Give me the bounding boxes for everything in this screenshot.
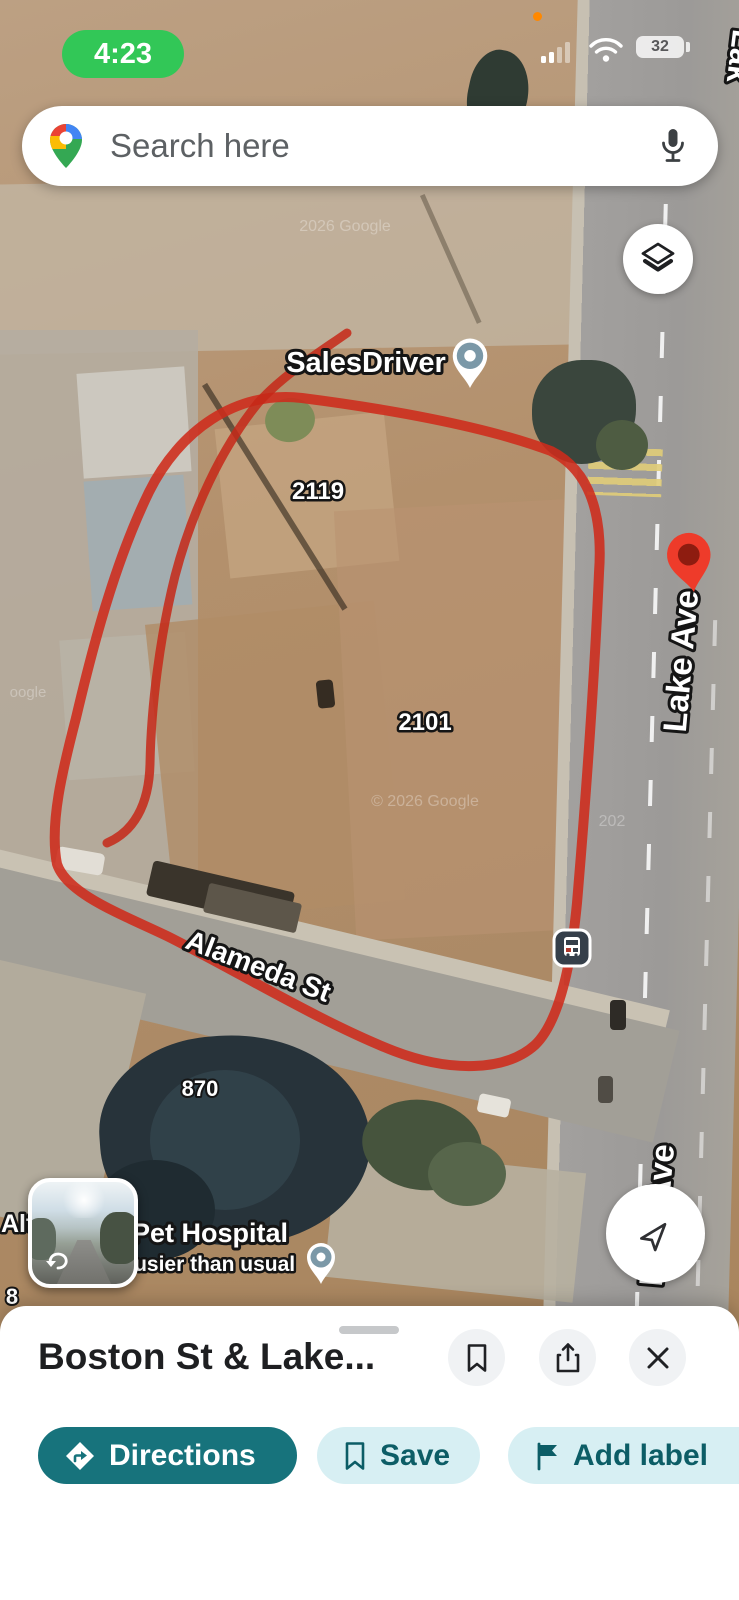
place-bottom-sheet: Boston St & Lake... <box>0 1306 739 1600</box>
directions-label: Directions <box>109 1439 256 1473</box>
label-salesdriver[interactable]: SalesDriver <box>286 347 446 379</box>
label-pet-hospital[interactable]: Pet Hospital <box>132 1218 288 1248</box>
save-label: Save <box>380 1439 450 1473</box>
label-alameda-st: Alameda St <box>182 924 335 1008</box>
pet-hospital-pin[interactable] <box>307 1243 335 1284</box>
close-icon <box>645 1345 671 1371</box>
label-lake-ave: Lake Ave <box>656 588 705 733</box>
navigation-arrow-icon <box>634 1212 678 1256</box>
label-parcel-2101: 2101 <box>398 709 451 736</box>
salesdriver-pin[interactable] <box>453 339 488 388</box>
place-title: Boston St & Lake... <box>38 1336 438 1378</box>
add-label-button[interactable]: Add label <box>508 1427 739 1484</box>
sheet-drag-handle[interactable] <box>339 1326 399 1334</box>
save-button[interactable]: Save <box>317 1427 480 1484</box>
label-lake-ave-top: Lak <box>720 28 739 86</box>
map-layers-button[interactable] <box>623 224 693 294</box>
microphone-icon[interactable] <box>660 128 686 164</box>
my-location-button[interactable] <box>606 1184 705 1283</box>
battery-nub <box>686 42 690 52</box>
street-view-loop-icon <box>44 1248 74 1272</box>
battery-indicator: 32 <box>636 36 684 58</box>
street-view-sun <box>60 1182 108 1218</box>
wifi-icon <box>588 36 624 63</box>
share-button[interactable] <box>539 1329 596 1386</box>
directions-button[interactable]: Directions <box>38 1427 297 1484</box>
label-8-partial: 8 <box>6 1284 18 1309</box>
map-watermark: © 2026 Google <box>371 793 479 810</box>
search-input[interactable]: Search here <box>110 127 660 165</box>
share-icon <box>554 1342 582 1374</box>
status-time-text: 4:23 <box>94 38 152 71</box>
save-bookmark-icon <box>343 1441 367 1471</box>
label-parcel-2119: 2119 <box>292 478 344 505</box>
label-busier-than-usual: Busier than usual <box>119 1253 295 1276</box>
battery-percent-text: 32 <box>651 38 669 56</box>
bookmark-icon <box>464 1343 490 1373</box>
map-watermark: 2026 Google <box>299 218 391 235</box>
flag-icon <box>534 1441 560 1471</box>
cellular-signal-icon <box>541 38 571 64</box>
label-parcel-870: 870 <box>182 1076 219 1101</box>
status-time: 4:23 <box>62 30 184 78</box>
add-label-label: Add label <box>573 1439 708 1473</box>
street-view-foliage <box>100 1212 138 1264</box>
bookmark-button[interactable] <box>448 1329 505 1386</box>
street-view-thumbnail[interactable] <box>28 1178 138 1288</box>
bus-stop-marker[interactable] <box>554 930 590 966</box>
search-bar[interactable]: Search here <box>22 106 718 186</box>
map-watermark: oogle <box>10 684 47 701</box>
notification-dot <box>533 12 542 21</box>
directions-icon <box>64 1440 96 1472</box>
destination-pin[interactable] <box>664 530 715 595</box>
close-button[interactable] <box>629 1329 686 1386</box>
layers-icon <box>639 241 677 277</box>
google-maps-app: 2026 Google © 2026 Google 202 oogle Sale… <box>0 0 739 1600</box>
google-maps-pin-logo <box>48 123 84 169</box>
map-watermark: 202 <box>599 813 626 830</box>
